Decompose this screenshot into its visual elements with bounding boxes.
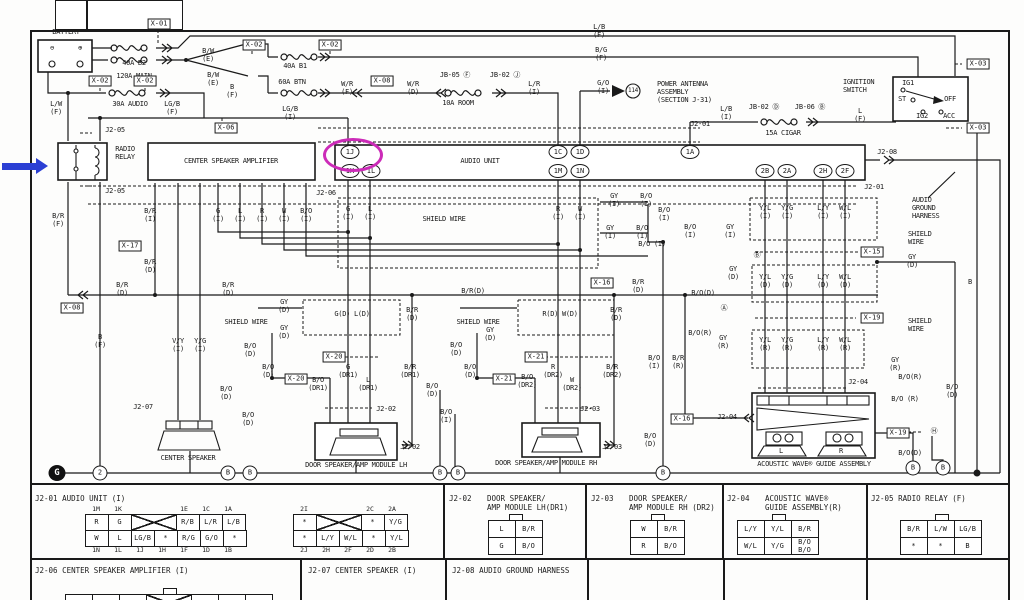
wire-label: W/L (I) <box>839 204 851 220</box>
pin-table-cell <box>316 514 362 531</box>
pin-1m: 1M <box>549 164 568 178</box>
pin-1a: 1A <box>681 145 700 159</box>
wire-label: B/R (D) <box>406 306 418 322</box>
wire-label: B/R (DR2) <box>602 363 622 379</box>
wire-label: SHIELD WIRE <box>908 230 932 246</box>
table-col-line <box>722 483 724 558</box>
table-col-line <box>866 558 868 600</box>
connector-box: X-16 <box>591 278 614 289</box>
pin-table-cell: L/Y <box>316 530 340 547</box>
table-col-line <box>723 558 725 600</box>
table-col-line <box>300 558 302 600</box>
wire-label: JB-02 Ⓙ <box>490 71 520 79</box>
wire-label: B/O(R) <box>898 373 922 381</box>
power-antenna-title: POWER ANTENNA ASSEMBLY (SECTION J-31) <box>657 80 712 104</box>
connector-cell: LG/B <box>954 520 982 538</box>
wire-label: B/R (D) <box>610 306 622 322</box>
wire-label: JB-02 Ⓓ <box>749 103 779 111</box>
ground-symbol-g: G <box>49 465 66 481</box>
wire-label: B/O (I) <box>658 206 670 222</box>
connector-cell: * <box>900 537 928 555</box>
table-col-line <box>866 483 868 558</box>
wire-label: B/R (R) <box>672 354 684 370</box>
wire-label: J2-02 <box>400 443 420 451</box>
wire-label: J2-04 <box>848 378 868 386</box>
pin-table-cell: 2F <box>337 546 359 555</box>
ground-point: 2 <box>93 466 108 481</box>
pin-table-cell: 2H <box>315 546 337 555</box>
pin-table-row: *L/YW/L*Y/L <box>293 530 408 546</box>
connector-row: WB/R <box>630 520 684 537</box>
connector-cell: L/W <box>927 520 955 538</box>
wire-label: B/O (D) <box>220 385 232 401</box>
pin-table-cell: * <box>362 530 386 547</box>
border-left <box>30 30 32 600</box>
table-col-line <box>443 483 445 558</box>
battery-title: BATTERY <box>52 28 79 36</box>
wire-label: Y/G (R) <box>781 336 793 352</box>
connector-cell: * <box>218 594 246 600</box>
ground-point: B <box>243 466 258 481</box>
table-title-j2-03: J2-03 <box>591 494 614 503</box>
wire-label: B/O(D) <box>691 289 715 297</box>
wire-label: W/L (D) <box>839 273 851 289</box>
pin-table-cell: Y/G <box>384 514 408 531</box>
pin-table-cell: 1F <box>173 546 195 555</box>
wire-label: B/O (I) <box>684 223 696 239</box>
highlight-ellipse-1j <box>323 138 383 172</box>
wire-label: 60A BTN <box>278 78 305 86</box>
wire-label: J2-04 <box>717 413 737 421</box>
connector-box: X-20 <box>323 352 346 363</box>
wire-label: ⊖ <box>50 44 54 52</box>
wire-label: 15A CIGAR <box>765 129 800 137</box>
connector-box: X-02 <box>134 76 157 87</box>
connector-row: BG**** <box>65 594 272 600</box>
connector-box: X-16 <box>671 414 694 425</box>
wire-label: R(D) W(D) <box>542 310 577 318</box>
connector-row: RB/O <box>630 537 684 554</box>
wire-label: W (I) <box>574 205 586 221</box>
connector-j2-03: WB/RRB/O <box>630 520 684 554</box>
ground-point: B <box>936 461 951 476</box>
connector-box: X-19 <box>861 313 884 324</box>
wire-label: GY (I) <box>724 223 736 239</box>
wire-label: J2-05 <box>105 126 125 134</box>
wire-label: B/O (I) <box>636 224 648 240</box>
wire-label: SHIELD WIRE <box>224 318 267 326</box>
connector-box: X-02 <box>243 40 266 51</box>
wire-label: G (I) <box>342 205 354 221</box>
door-speaker-rh-title: DOOR SPEAKER/AMP MODULE RH <box>495 459 597 467</box>
wire-label: GY (D) <box>727 265 739 281</box>
wire-label: G/O (I) <box>597 79 609 95</box>
pin-table-cell: 1B <box>217 546 239 555</box>
wire-label: B/O (D) <box>244 342 256 358</box>
wire-label: B/R (F) <box>52 212 64 228</box>
pin-table-cell: Y/L <box>385 530 409 547</box>
table-title-j2-01: J2-01 AUDIO UNIT (I) <box>35 494 125 503</box>
wire-label: J2-03 <box>580 405 600 413</box>
wire-label: L/Y (R) <box>817 336 829 352</box>
connector-box: X-08 <box>61 303 84 314</box>
connector-cell: * <box>245 594 273 600</box>
pin-table-j2-01-right: 2I2C2A**Y/G*L/YW/L*Y/L2J2H2F2D2B <box>293 505 408 555</box>
wire-label: B (F) <box>94 333 106 349</box>
wire-label: G(D) L(D) <box>334 310 369 318</box>
wire-label: ST <box>898 95 906 103</box>
wire-label: L (I) <box>234 207 246 223</box>
wire-label: GY (I) <box>604 224 616 240</box>
wire-label: J2-02 <box>376 405 396 413</box>
connector-cell: B/R <box>515 520 543 538</box>
center-speaker-title: CENTER SPEAKER <box>161 454 216 462</box>
audio-ground-harness-label: AUDIO GROUND HARNESS <box>912 196 939 220</box>
wire-label: G (DR1) <box>338 363 358 379</box>
pin-table-cell: 1N <box>85 546 107 555</box>
wire-label: L/R (I) <box>528 80 540 96</box>
connector-cell: L/Y <box>737 520 765 538</box>
wire-label: B/O (D) <box>426 382 438 398</box>
connector-cell <box>146 594 192 600</box>
pin-table-cell: LG/B <box>131 530 155 547</box>
wire-label: B/O (D) <box>946 383 958 399</box>
wire-label: GY (D) <box>484 326 496 342</box>
wire-label: B/R (D) <box>144 258 156 274</box>
wire-label: L/Y (I) <box>817 204 829 220</box>
connector-box: X-01 <box>148 19 171 30</box>
pin-table-cell: 1H <box>151 546 173 555</box>
wire-label: B/R(D) <box>461 287 485 295</box>
wire-label: OFF <box>944 95 956 103</box>
connector-cell: * <box>119 594 147 600</box>
wire-label: B/O (I) <box>440 408 452 424</box>
connector-cell: Y/L <box>764 520 792 538</box>
pin-table-cell: 2J <box>293 546 315 555</box>
ignition-switch-title: IGNITION SWITCH <box>843 78 874 94</box>
wire-label: L (I) <box>364 205 376 221</box>
connector-cell: W/L <box>737 537 765 555</box>
wire-label: L (DR1) <box>358 376 378 392</box>
connector-cell: * <box>191 594 219 600</box>
connector-cell: R <box>630 537 658 555</box>
pin-table-cell: W <box>85 530 109 547</box>
pin-table-cell: L <box>108 530 132 547</box>
pin-table-cell: 1J <box>129 546 151 555</box>
connector-box: X-03 <box>967 123 990 134</box>
connector-box: X-21 <box>493 374 516 385</box>
wire-label: IG2 <box>916 112 928 120</box>
wire-label: Ⓐ <box>721 304 728 312</box>
connector-j2-06: BG**** <box>65 594 272 600</box>
ground-point: B <box>451 466 466 481</box>
wire-label: W/R (F) <box>341 80 353 96</box>
table-title-j2-08: J2-08 AUDIO GROUND HARNESS <box>452 566 569 575</box>
wire-label: B <box>968 278 972 286</box>
wire-label: GY (D) <box>278 324 290 340</box>
wire-label: W (I) <box>278 207 290 223</box>
ground-point: B <box>656 466 671 481</box>
connector-cell: Y/G <box>764 537 792 555</box>
border-top <box>30 30 1008 32</box>
ground-point: B <box>906 461 921 476</box>
wiring-diagram: G J2-01 AUDIO UNIT (I) 1M1K1E1C1ARGR/BL/… <box>0 0 1024 600</box>
wire-label: SHIELD WIRE <box>908 317 932 333</box>
wire-label: J2-03 <box>602 443 622 451</box>
table-title-j2-07: J2-07 CENTER SPEAKER (I) <box>308 566 416 575</box>
wire-label: B/O (D) <box>262 363 274 379</box>
wire-label: B/O (D) <box>644 432 656 448</box>
connector-row: B/RL/WLG/B <box>900 520 981 537</box>
connector-cell: B/O <box>657 537 685 555</box>
pin-table-cell: * <box>293 530 317 547</box>
acoustic-wave-title: ACOUSTIC WAVE® GUIDE ASSEMBLY <box>757 460 871 468</box>
wire-label: L/Y (D) <box>817 273 829 289</box>
wire-label: J2-05 <box>105 187 125 195</box>
wire-label: LG/B (I) <box>282 105 298 121</box>
wire-label: GY (R) <box>889 356 901 372</box>
pin-table-cell: * <box>293 514 317 531</box>
pin-table-cell: 2B <box>381 546 403 555</box>
wire-label: GY (D) <box>906 253 918 269</box>
pin-table-row: WLLG/B*R/GG/O* <box>85 530 246 546</box>
wire-label: B/W (E) <box>202 47 214 63</box>
connector-j2-02: LB/RGB/O <box>488 520 542 554</box>
wire-label: Y/G (I) <box>781 204 793 220</box>
wire-label: 30A AUDIO <box>112 100 147 108</box>
connector-box: X-19 <box>887 428 910 439</box>
wire-label: J2-07 <box>133 403 153 411</box>
wire-label: B/O(D) <box>898 449 922 457</box>
wire-label: B/G (F) <box>595 46 607 62</box>
audio-unit-title: AUDIO UNIT <box>460 157 499 165</box>
table-col-line <box>445 558 447 600</box>
pin-table-cell: W/L <box>339 530 363 547</box>
pin-2f: 2F <box>836 164 855 178</box>
pin-2a: 2A <box>778 164 797 178</box>
wire-label: R <box>839 447 843 455</box>
wire-label: R (I) <box>256 207 268 223</box>
wire-label: GY (I) <box>608 192 620 208</box>
wire-label: IG1 <box>902 79 914 87</box>
connector-box: X-17 <box>119 241 142 252</box>
table-subtitle-j2-04: ACOUSTIC WAVE® GUIDE ASSEMBLY(R) <box>765 494 842 512</box>
pin-table-cell: * <box>361 514 385 531</box>
pin-2h: 2H <box>814 164 833 178</box>
wire-label: B/O (I) <box>640 192 652 208</box>
pin-1c: 1C <box>549 145 568 159</box>
wire-label: G (I) <box>212 207 224 223</box>
wire-label: Y/G (I) <box>194 337 206 353</box>
table-col-line <box>585 483 587 558</box>
connector-box: X-02 <box>319 40 342 51</box>
wire-label: B/O (DR1) <box>308 376 328 392</box>
pin-table-row: 2J2H2F2D2B <box>293 546 408 555</box>
wire-label: B/R (D) <box>222 281 234 297</box>
wire-label: B/O (DR2) <box>517 373 537 389</box>
connector-box: X-06 <box>215 123 238 134</box>
radio-relay-title: RADIO RELAY <box>115 145 135 161</box>
wire-label: ACC <box>943 112 955 120</box>
wire-label: B/R (DR1) <box>400 363 420 379</box>
pin-table-cell: R <box>85 514 109 531</box>
connector-row: W/LY/GB/O B/O <box>737 537 818 554</box>
connector-box: X-20 <box>285 374 308 385</box>
wire-label: V/Y (I) <box>172 337 184 353</box>
wire-label: L/W (F) <box>50 100 62 116</box>
wire-label: B/W (E) <box>207 71 219 87</box>
pin-table-cell: L/R <box>199 514 223 531</box>
wire-label: Y/G (D) <box>781 273 793 289</box>
connector-box: X-08 <box>371 76 394 87</box>
table-title-j2-04: J2-04 <box>727 494 750 503</box>
pin-table-cell: R/G <box>177 530 201 547</box>
pin-table-cell: G <box>108 514 132 531</box>
wire-label: SHIELD WIRE <box>422 215 465 223</box>
connector-cell: * <box>927 537 955 555</box>
pin-table-cell: 1L <box>107 546 129 555</box>
pin-table-row: 1N1L1J1H1F1D1B <box>85 546 246 555</box>
wire-label: J2-01 <box>864 183 884 191</box>
wire-label: J2-06 <box>316 189 336 197</box>
wire-label: Ⓑ <box>754 251 761 259</box>
pin-table-cell: * <box>223 530 247 547</box>
wire-label: B/O (I) <box>638 240 665 248</box>
connector-row: GB/O <box>488 537 542 554</box>
wire-label: SHIELD WIRE <box>456 318 499 326</box>
wire-label: 40A B1 <box>283 62 307 70</box>
wire-label: 40A B2 <box>122 59 146 67</box>
ground-point: B <box>221 466 236 481</box>
table-col-line <box>587 558 589 600</box>
wire-label: 10A ROOM <box>442 99 473 107</box>
wire-label: B/O (I) <box>648 354 660 370</box>
wire-label: Ⓗ <box>931 427 938 435</box>
wire-label: B/R (D) <box>116 281 128 297</box>
wire-label: W/L (R) <box>839 336 851 352</box>
pin-table-j2-01-left: 1M1K1E1C1ARGR/BL/RL/BWLLG/B*R/GG/O*1N1L1… <box>85 505 246 555</box>
wire-label: B/O (D) <box>242 411 254 427</box>
wire-label: 114 <box>628 87 638 95</box>
wire-label: B/O (I) <box>300 207 312 223</box>
border-right <box>1008 30 1010 600</box>
pin-2b: 2B <box>756 164 775 178</box>
wire-label: L <box>779 447 783 455</box>
connector-cell: B <box>954 537 982 555</box>
connector-row: **B <box>900 537 981 554</box>
connector-j2-05: B/RL/WLG/B**B <box>900 520 981 554</box>
wire-label: J2-08 <box>877 148 897 156</box>
table-divider-top <box>30 483 1008 485</box>
wire-label: LG/B (F) <box>164 100 180 116</box>
connector-box: X-21 <box>525 352 548 363</box>
wire-label: ⊕ <box>78 44 82 52</box>
center-speaker-amplifier-title: CENTER SPEAKER AMPLIFIER <box>184 157 278 165</box>
connector-cell: G <box>488 537 516 555</box>
pin-table-cell: G/O <box>200 530 224 547</box>
pin-1n: 1N <box>571 164 590 178</box>
pin-table-cell: 2D <box>359 546 381 555</box>
wire-label: Y/L (D) <box>759 273 771 289</box>
wire-label: JB-05 Ⓕ <box>440 71 470 79</box>
connector-cell: B/R <box>791 520 819 538</box>
table-subtitle-j2-02: DOOR SPEAKER/ AMP MODULE LH(DR1) <box>487 494 568 512</box>
wire-label: GY (D) <box>278 298 290 314</box>
door-speaker-lh-title: DOOR SPEAKER/AMP MODULE LH <box>305 461 407 469</box>
connector-box: X-02 <box>89 76 112 87</box>
wire-label: B/O (R) <box>891 395 918 403</box>
connector-cell: B/R <box>900 520 928 538</box>
wire-label: GY (R) <box>717 334 729 350</box>
table-divider-mid <box>30 558 1008 560</box>
pointer-arrow <box>2 163 36 170</box>
wire-label: W (DR2) <box>562 376 582 392</box>
connector-row: L/YY/LB/R <box>737 520 818 537</box>
wire-label: R (I) <box>552 205 564 221</box>
connector-box: X-03 <box>967 59 990 70</box>
table-subtitle-j2-03: DOOR SPEAKER/ AMP MODULE RH (DR2) <box>629 494 715 512</box>
wire-label: L/B (I) <box>720 105 732 121</box>
pin-table-cell: 1D <box>195 546 217 555</box>
wire-label: B/R (I) <box>144 207 156 223</box>
pin-table-cell: L/B <box>222 514 246 531</box>
connector-j2-04: L/YY/LB/RW/LY/GB/O B/O <box>737 520 818 554</box>
pin-table-cell <box>131 514 177 531</box>
wire-label: B/O(R) <box>688 329 712 337</box>
table-title-j2-02: J2-02 <box>449 494 472 503</box>
table-title-j2-06: J2-06 CENTER SPEAKER AMPLIFIER (I) <box>35 566 189 575</box>
connector-row: LB/R <box>488 520 542 537</box>
connector-cell: B <box>65 594 93 600</box>
wire-label: L/B (F) <box>593 23 605 39</box>
wire-label: B/O (D) <box>464 363 476 379</box>
wire-label: B/O (D) <box>450 341 462 357</box>
wire-label: B (F) <box>226 83 238 99</box>
wire-label: JB-06 Ⓑ <box>795 103 825 111</box>
table-title-j2-05: J2-05 RADIO RELAY (F) <box>871 494 966 503</box>
wire-label: R (DR2) <box>543 363 563 379</box>
wire-label: B/R (D) <box>632 278 644 294</box>
connector-cell: B/R <box>657 520 685 538</box>
pin-table-cell: * <box>154 530 178 547</box>
pin-table-row: RGR/BL/RL/B <box>85 514 246 530</box>
connector-box: X-15 <box>861 247 884 258</box>
connector-cell: B/O B/O <box>791 537 819 555</box>
connector-cell: B/O <box>515 537 543 555</box>
connector-cell: L <box>488 520 516 538</box>
pin-table-row: **Y/G <box>293 514 408 530</box>
pin-table-cell: R/B <box>176 514 200 531</box>
wire-label: W/R (D) <box>407 80 419 96</box>
wire-label: Y/L (I) <box>759 204 771 220</box>
wire-label: Y/L (R) <box>759 336 771 352</box>
wire-label: L (F) <box>854 107 866 123</box>
ground-point: B <box>433 466 448 481</box>
pin-1d: 1D <box>571 145 590 159</box>
connector-cell: W <box>630 520 658 538</box>
connector-cell: G <box>92 594 120 600</box>
wire-label: J2-01 <box>690 120 710 128</box>
